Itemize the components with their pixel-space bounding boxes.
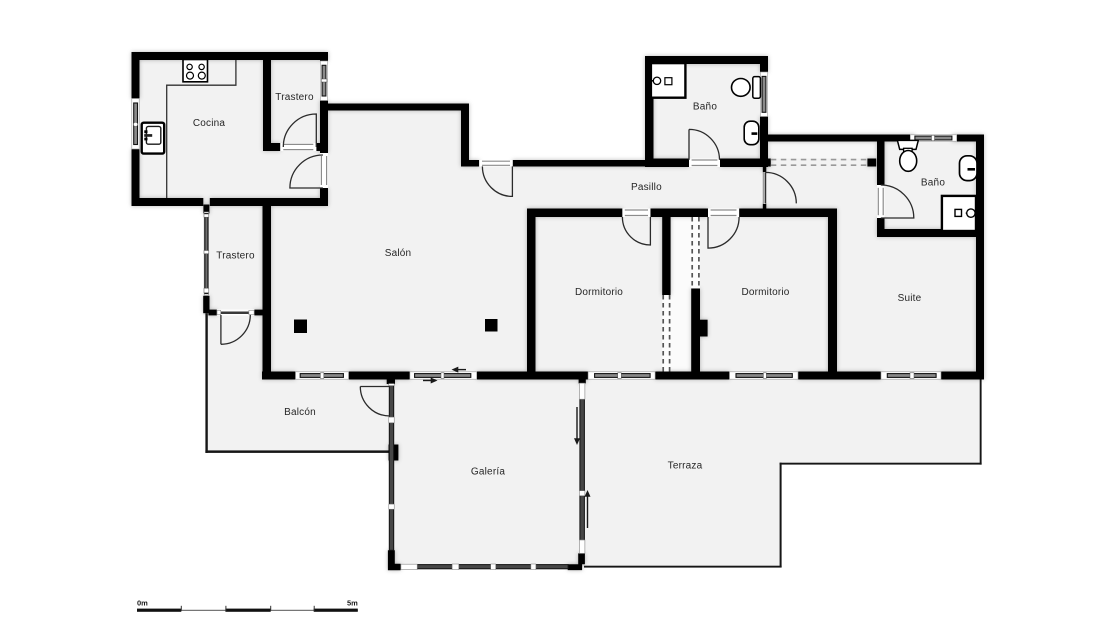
svg-text:Trastero: Trastero <box>275 92 314 103</box>
svg-text:Terraza: Terraza <box>668 460 703 471</box>
svg-text:Trastero: Trastero <box>216 251 255 262</box>
svg-text:Dormitorio: Dormitorio <box>741 287 789 298</box>
svg-text:Pasillo: Pasillo <box>631 182 662 193</box>
svg-text:Dormitorio: Dormitorio <box>575 287 623 298</box>
svg-text:Salón: Salón <box>385 248 412 259</box>
svg-text:Suite: Suite <box>898 293 922 304</box>
svg-text:Balcón: Balcón <box>284 407 316 418</box>
svg-text:Baño: Baño <box>693 102 717 113</box>
svg-text:Cocina: Cocina <box>193 118 226 129</box>
svg-text:Galería: Galería <box>471 467 505 478</box>
svg-text:0m: 0m <box>137 599 148 608</box>
svg-text:Baño: Baño <box>921 178 945 189</box>
svg-text:5m: 5m <box>347 599 358 608</box>
